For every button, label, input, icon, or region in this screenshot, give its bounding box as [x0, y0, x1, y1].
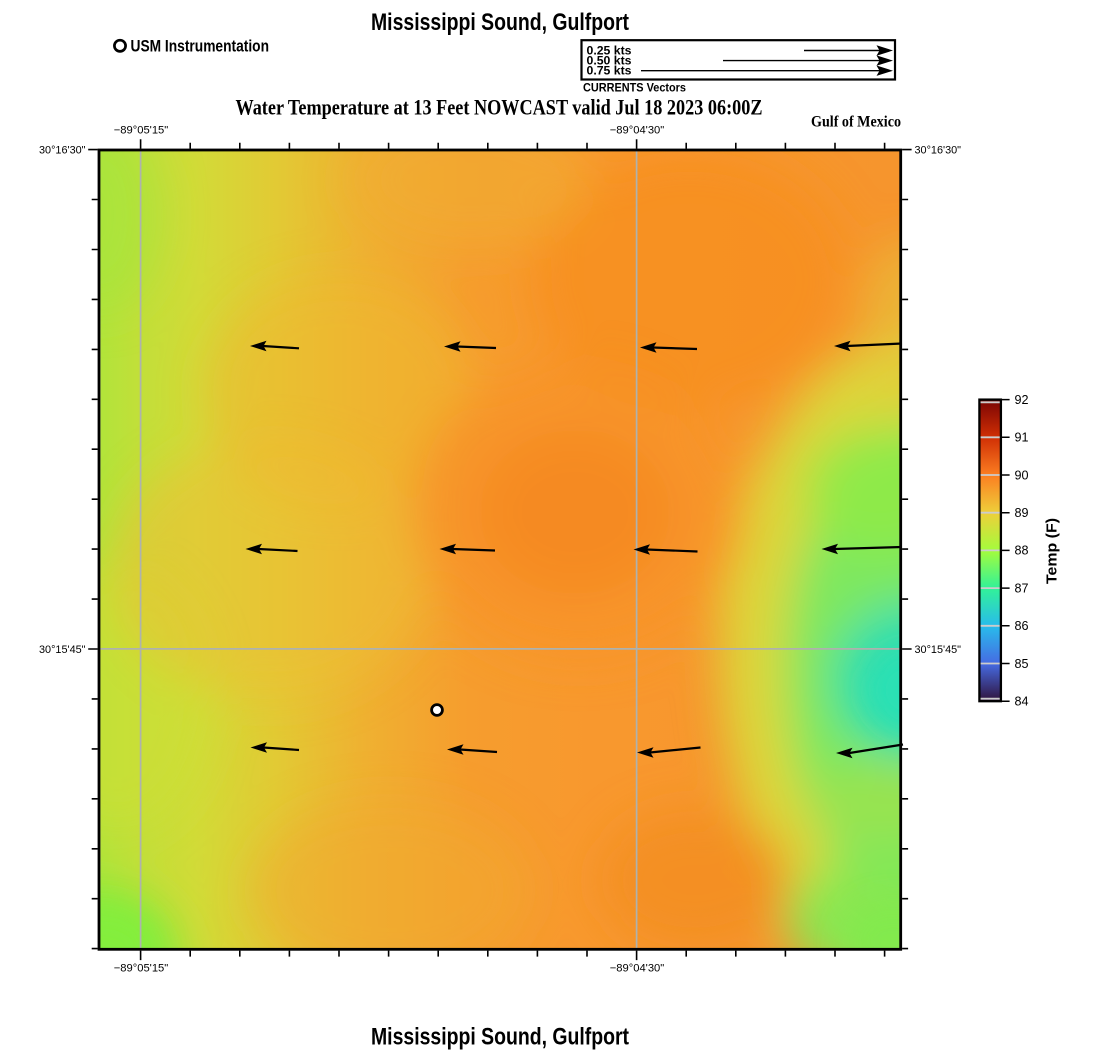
svg-text:Mississippi Sound, Gulfport: Mississippi Sound, Gulfport [371, 1024, 629, 1050]
svg-text:0.75 kts: 0.75 kts [587, 63, 632, 77]
svg-text:89: 89 [1015, 506, 1029, 520]
svg-text:Water Temperature at 13 Feet N: Water Temperature at 13 Feet NOWCAST val… [236, 94, 763, 119]
svg-text:30°15'45": 30°15'45" [39, 644, 86, 656]
svg-text:84: 84 [1015, 695, 1029, 709]
svg-text:87: 87 [1015, 581, 1029, 595]
svg-text:30°16'30": 30°16'30" [915, 145, 962, 157]
svg-text:90: 90 [1015, 468, 1029, 482]
svg-text:Temp (F): Temp (F) [1045, 518, 1061, 584]
svg-text:−89°05'15": −89°05'15" [114, 125, 169, 137]
svg-text:86: 86 [1015, 619, 1029, 633]
svg-text:Mississippi Sound, Gulfport: Mississippi Sound, Gulfport [371, 9, 629, 36]
svg-text:−89°04'30": −89°04'30" [610, 963, 665, 975]
svg-text:30°16'30": 30°16'30" [39, 145, 86, 157]
svg-text:92: 92 [1015, 393, 1029, 407]
svg-text:88: 88 [1015, 544, 1029, 558]
svg-text:USM Instrumentation: USM Instrumentation [131, 37, 270, 56]
svg-text:−89°04'30": −89°04'30" [610, 125, 665, 137]
svg-text:85: 85 [1015, 657, 1029, 671]
svg-text:30°15'45": 30°15'45" [915, 644, 962, 656]
svg-text:−89°05'15": −89°05'15" [114, 963, 169, 975]
svg-text:91: 91 [1015, 431, 1029, 445]
svg-text:Gulf of Mexico: Gulf of Mexico [811, 113, 901, 130]
svg-text:CURRENTS Vectors: CURRENTS Vectors [583, 81, 686, 95]
